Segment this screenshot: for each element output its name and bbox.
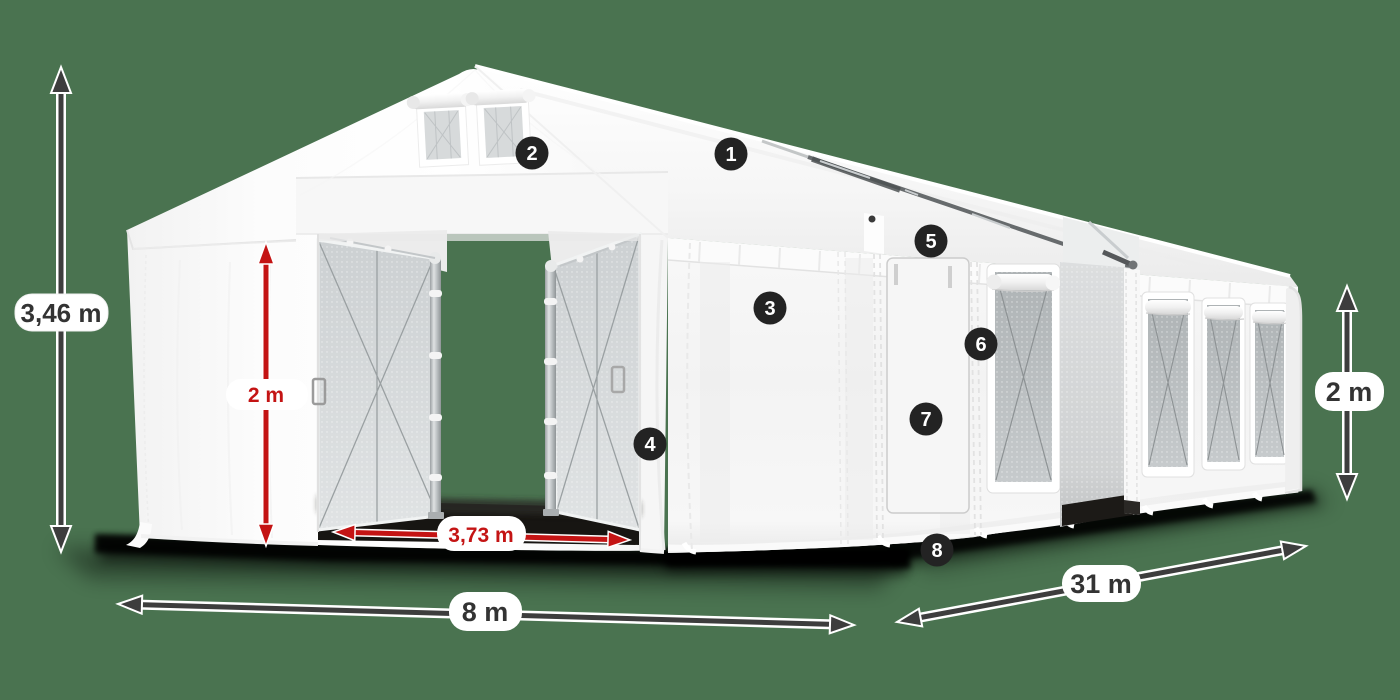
svg-text:5: 5 bbox=[925, 231, 936, 253]
svg-text:3,73 m: 3,73 m bbox=[448, 524, 513, 547]
svg-text:8 m: 8 m bbox=[462, 597, 509, 627]
svg-text:2 m: 2 m bbox=[248, 384, 284, 407]
svg-text:3,46 m: 3,46 m bbox=[21, 298, 102, 328]
svg-text:7: 7 bbox=[920, 409, 931, 431]
svg-text:2 m: 2 m bbox=[1326, 377, 1373, 407]
svg-text:4: 4 bbox=[644, 434, 656, 456]
svg-text:31 m: 31 m bbox=[1070, 569, 1132, 599]
svg-text:8: 8 bbox=[931, 540, 942, 562]
svg-text:1: 1 bbox=[725, 144, 736, 166]
svg-text:3: 3 bbox=[764, 298, 775, 320]
svg-text:2: 2 bbox=[526, 143, 537, 165]
svg-text:6: 6 bbox=[975, 334, 986, 356]
